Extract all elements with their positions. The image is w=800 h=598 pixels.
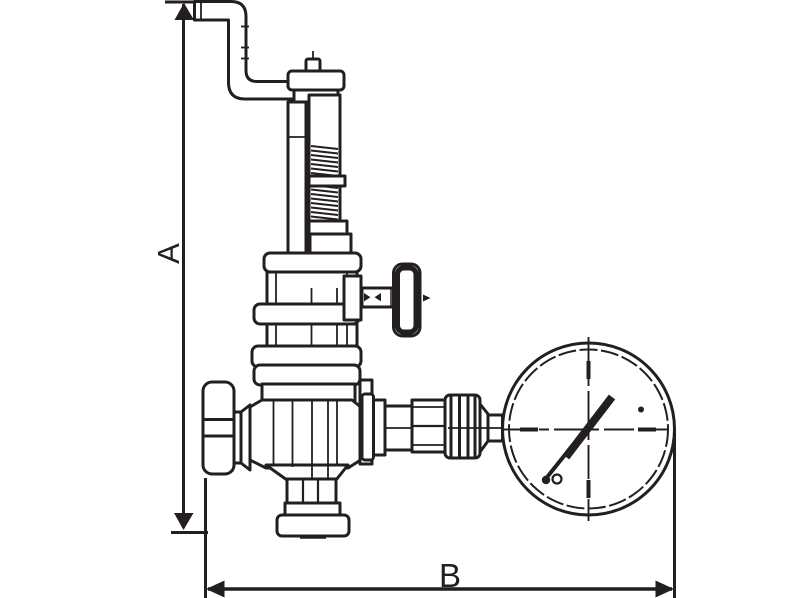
svg-text:A: A (151, 243, 186, 264)
svg-text:B: B (439, 557, 461, 594)
